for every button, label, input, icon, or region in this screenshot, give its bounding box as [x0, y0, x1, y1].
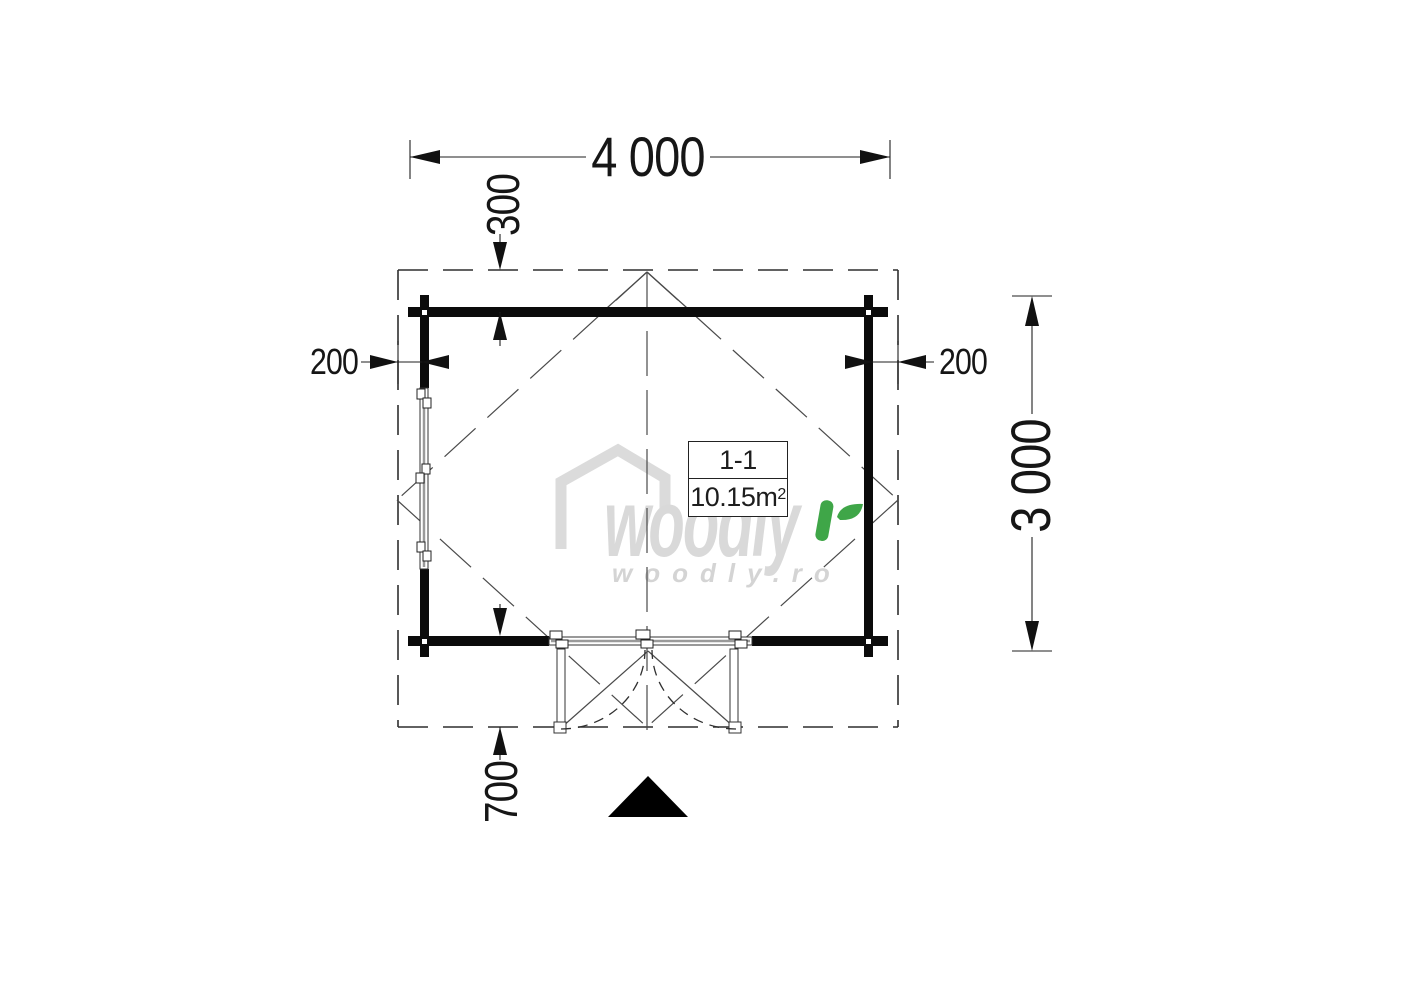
- dim-height-label: 3 000: [1003, 419, 1059, 533]
- dim-overhang-right-label: 200: [939, 344, 987, 380]
- dimension-overhang-200-left: [361, 341, 449, 384]
- door-swing-arcs: [561, 650, 736, 729]
- roof-ridge-lines: [397, 272, 898, 733]
- dimension-porch-700: [493, 604, 507, 760]
- roof-overhang-outline: [398, 270, 898, 727]
- dim-overhang-top-label: 300: [480, 174, 526, 236]
- dimension-overhang-300: [493, 234, 507, 346]
- dim-porch-label: 700: [478, 761, 524, 823]
- dim-overhang-left-label: 200: [310, 344, 358, 380]
- window-left-wall: [416, 388, 431, 569]
- room-area: 10.15m2: [689, 479, 787, 515]
- dim-width-label: 4 000: [591, 129, 705, 185]
- dimension-overhang-200-right: [845, 341, 934, 384]
- room-label-box: 1-1 10.15m2: [688, 441, 788, 517]
- floor-plan-canvas: woodly woodly.ro: [0, 0, 1415, 1000]
- double-door: [549, 630, 752, 733]
- exterior-walls: [408, 295, 888, 657]
- room-name: 1-1: [689, 442, 787, 479]
- entrance-arrow: [608, 776, 688, 817]
